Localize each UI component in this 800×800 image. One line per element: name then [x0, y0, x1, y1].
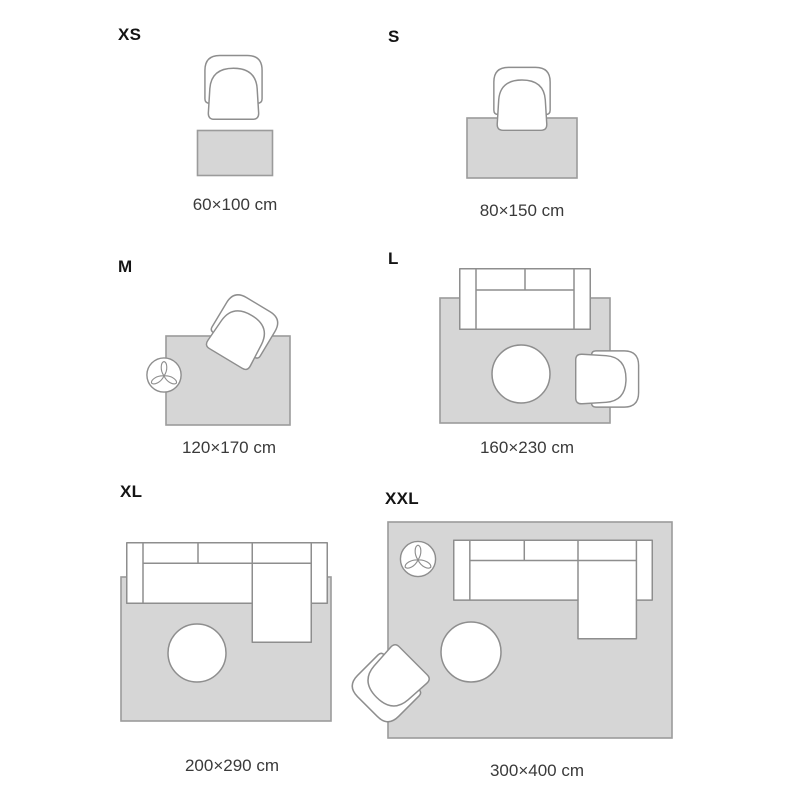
size-label-m: M: [118, 257, 132, 277]
dimension-label-xl: 200×290 cm: [185, 756, 279, 776]
armchair-icon: [205, 55, 262, 119]
rug-size-guide: XS S M L XL XXL 60×100 cm 80×150 cm 120×…: [0, 0, 800, 800]
size-diagram-xs: [198, 55, 273, 175]
armchair-icon: [576, 351, 639, 407]
rug-xs: [198, 131, 273, 176]
size-label-s: S: [388, 27, 400, 47]
size-diagram-m: [147, 290, 290, 425]
size-label-xs: XS: [118, 25, 141, 45]
plant-icon: [400, 541, 435, 576]
dimension-label-s: 80×150 cm: [480, 201, 565, 221]
sofa-icon: [460, 269, 591, 330]
size-diagram-s: [467, 67, 577, 178]
size-label-xl: XL: [120, 482, 142, 502]
plant-icon: [147, 358, 181, 392]
size-diagram-l: [440, 269, 639, 423]
pouf-icon: [492, 345, 550, 403]
armchair-icon: [494, 67, 550, 130]
pouf-icon: [441, 622, 501, 682]
pouf-icon: [168, 624, 226, 682]
size-label-l: L: [388, 249, 399, 269]
rug-size-diagrams: [0, 0, 800, 800]
size-label-xxl: XXL: [385, 489, 419, 509]
dimension-label-m: 120×170 cm: [182, 438, 276, 458]
dimension-label-xs: 60×100 cm: [193, 195, 278, 215]
size-diagram-xxl: [347, 522, 672, 738]
dimension-label-l: 160×230 cm: [480, 438, 574, 458]
dimension-label-xxl: 300×400 cm: [490, 761, 584, 781]
size-diagram-xl: [121, 543, 331, 721]
